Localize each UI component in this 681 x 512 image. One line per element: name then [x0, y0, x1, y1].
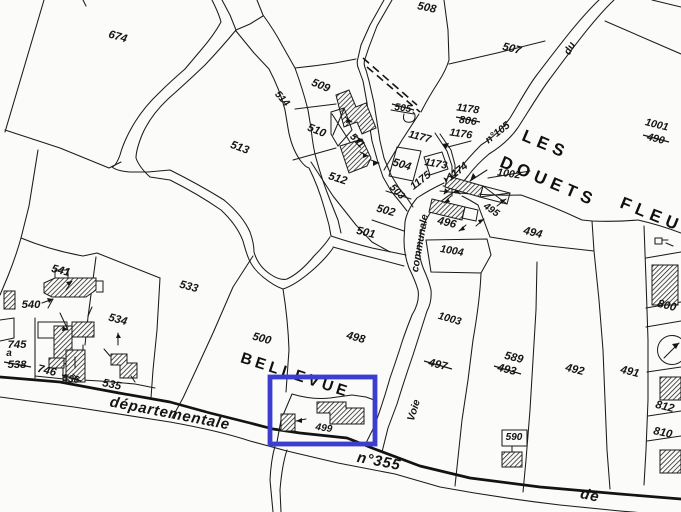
svg-text:départementale: départementale [108, 394, 231, 434]
svg-text:541: 541 [50, 263, 71, 279]
svg-text:1003: 1003 [437, 310, 463, 328]
svg-text:533: 533 [178, 279, 200, 296]
svg-text:495: 495 [480, 200, 501, 219]
svg-text:513: 513 [229, 139, 251, 157]
svg-text:494: 494 [521, 225, 544, 242]
svg-text:514: 514 [272, 89, 292, 109]
svg-text:503: 503 [387, 182, 407, 202]
svg-text:499: 499 [314, 422, 333, 435]
svg-text:507: 507 [501, 41, 523, 57]
svg-text:501: 501 [355, 225, 376, 241]
svg-text:Voie: Voie [405, 398, 423, 422]
svg-text:communale: communale [409, 213, 431, 273]
svg-text:504: 504 [391, 157, 413, 174]
svg-text:509: 509 [310, 77, 333, 95]
svg-text:810: 810 [652, 425, 674, 441]
svg-text:de: de [579, 485, 601, 506]
svg-text:1175: 1175 [408, 168, 434, 192]
svg-text:500: 500 [251, 331, 273, 348]
svg-text:674: 674 [107, 29, 129, 46]
svg-text:1177: 1177 [407, 128, 433, 145]
svg-text:1173: 1173 [424, 156, 449, 172]
svg-text:502: 502 [375, 203, 397, 220]
svg-text:491: 491 [618, 364, 640, 380]
svg-text:DOUETS: DOUETS [497, 152, 600, 210]
svg-text:n°355: n°355 [356, 449, 403, 474]
svg-text:LES: LES [519, 126, 572, 163]
svg-text:510: 510 [306, 122, 329, 140]
svg-text:1176: 1176 [449, 126, 473, 141]
svg-text:n°105: n°105 [483, 119, 513, 146]
svg-text:812: 812 [654, 399, 676, 415]
svg-text:512: 512 [327, 170, 349, 187]
svg-text:534: 534 [107, 312, 129, 329]
svg-text:du: du [562, 39, 579, 56]
svg-text:1004: 1004 [439, 243, 464, 259]
svg-text:FLEU: FLEU [617, 193, 681, 235]
svg-text:540: 540 [22, 299, 42, 311]
svg-text:508: 508 [416, 0, 438, 16]
svg-text:498: 498 [344, 329, 367, 346]
svg-text:a: a [6, 348, 12, 359]
svg-text:492: 492 [563, 362, 586, 379]
svg-text:590: 590 [506, 432, 523, 443]
